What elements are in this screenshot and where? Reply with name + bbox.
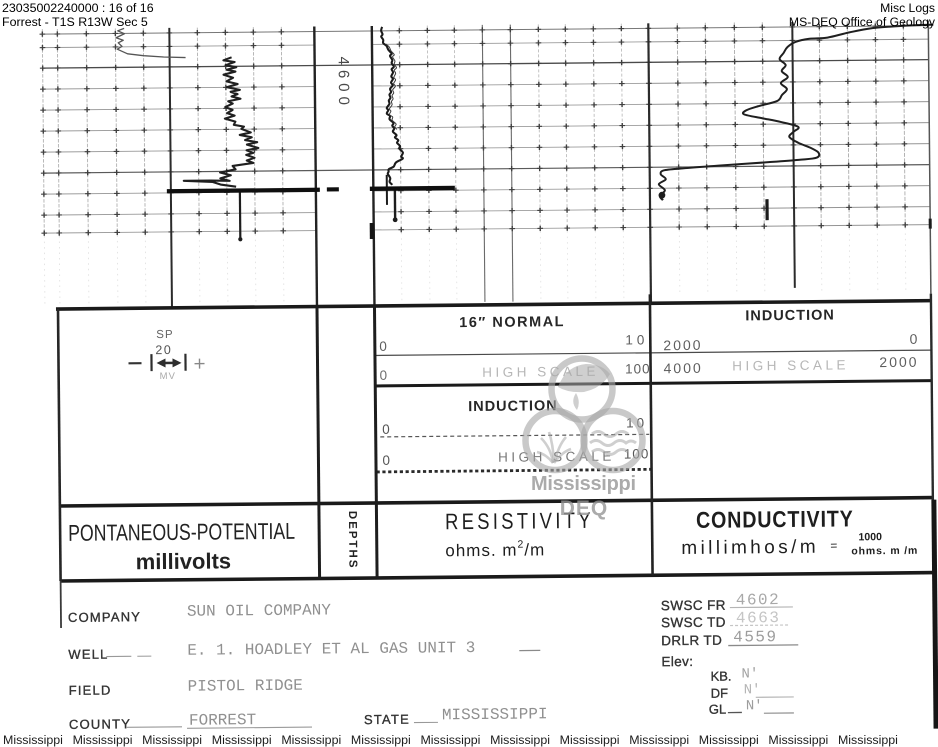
svg-text:Mississippi: Mississippi [531, 473, 637, 495]
svg-text:DEQ: DEQ [560, 497, 609, 520]
